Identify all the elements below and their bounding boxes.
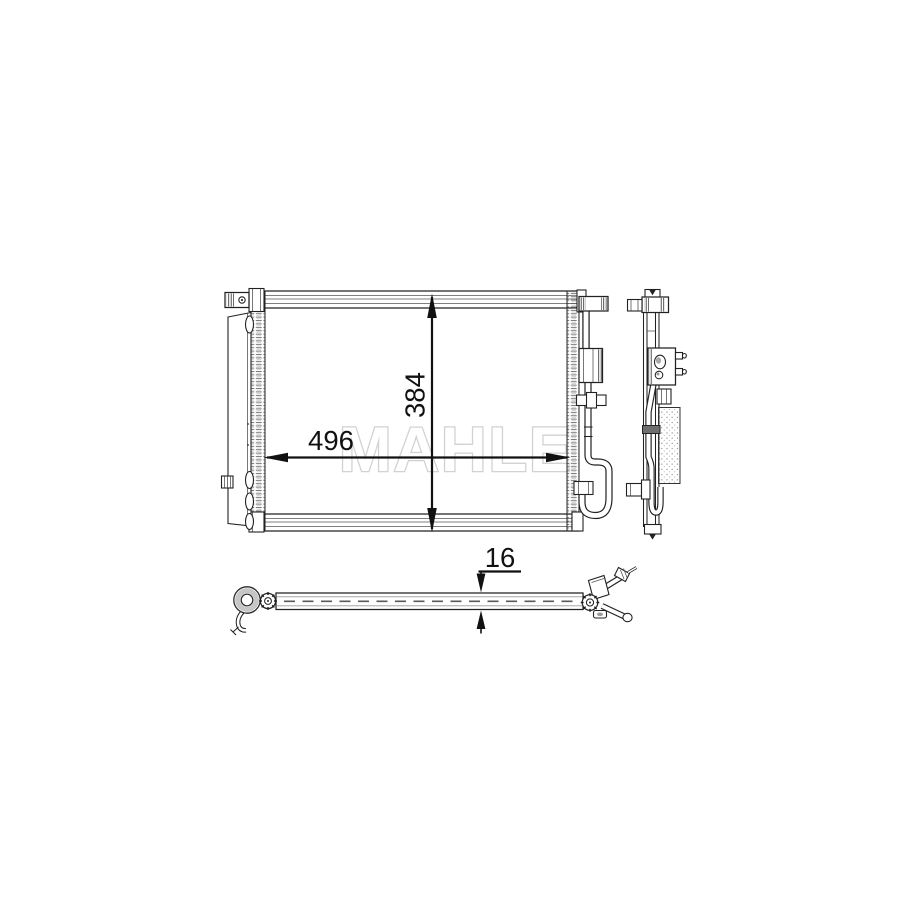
top-header-tube (250, 291, 579, 308)
side-bracket (657, 389, 671, 404)
dimension-height: 384 (400, 294, 437, 533)
bottom-header-tube (250, 514, 579, 531)
dimension-width-label: 496 (308, 425, 354, 456)
technical-drawing-svg: MAHLE (0, 0, 900, 900)
bracket-clip (222, 476, 234, 488)
left-ring-fitting (231, 587, 261, 635)
product-technical-drawing: MAHLE (0, 0, 900, 900)
dimension-depth: 16 (477, 542, 521, 634)
pipe-band (643, 426, 661, 434)
side-left-tab (627, 480, 651, 499)
dimension-height-label: 384 (400, 372, 431, 418)
left-mounting-bracket (222, 313, 254, 530)
arrowhead-up-icon (477, 611, 486, 630)
side-port-block (648, 348, 686, 385)
right-gear-connector (581, 593, 600, 612)
pipe-clamp (574, 482, 593, 495)
arrowhead-left-icon (264, 453, 289, 463)
profile-bar (276, 593, 583, 610)
brand-watermark-text: MAHLE (339, 415, 573, 485)
receiver-drier (659, 408, 681, 484)
port-pins (676, 353, 687, 376)
arrowhead-down-icon (477, 574, 486, 593)
side-bottom-cap (645, 525, 662, 540)
condenser-side-view (627, 290, 687, 540)
service-valve-block (579, 349, 603, 383)
outlet-connector-block (579, 297, 608, 312)
left-gear-connector (259, 592, 277, 610)
condenser-profile-view (231, 568, 637, 636)
right-bracket-fitting (581, 568, 637, 622)
side-top-connector (628, 297, 669, 313)
pipe-cross-tab (577, 393, 607, 409)
dimension-depth-label: 16 (485, 542, 516, 573)
inlet-fitting (225, 293, 249, 308)
